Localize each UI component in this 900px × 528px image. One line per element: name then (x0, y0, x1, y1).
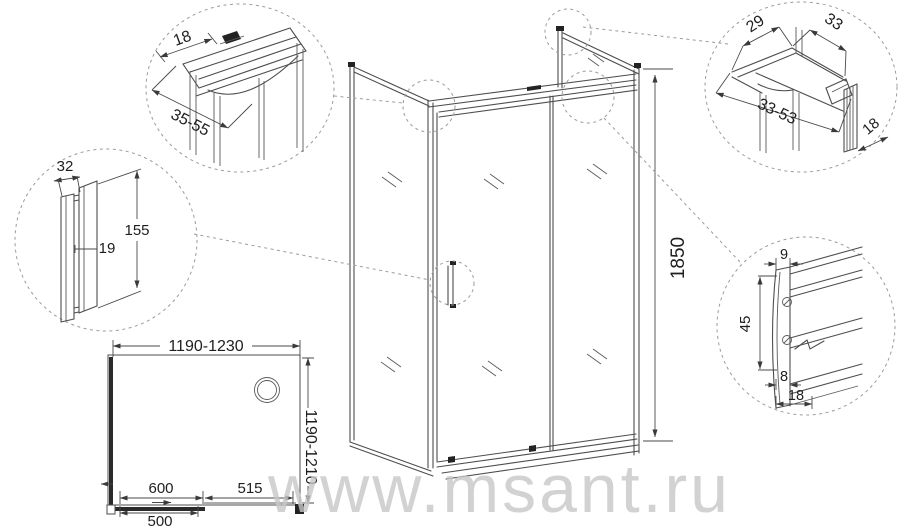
plan-door-label: 500 (147, 513, 172, 528)
drawing-svg: 1850 18 35-55 (0, 0, 900, 528)
handle-length-label: 155 (124, 222, 149, 239)
corner-profile-plan (107, 505, 115, 514)
detail-handle: 32 155 19 (15, 149, 197, 331)
height-dimension: 1850 (643, 69, 689, 441)
handle-gap-label: 19 (99, 240, 116, 257)
profile-cap (348, 62, 355, 67)
detail-tr-width-b-label: 33 (821, 10, 845, 34)
detail-tr-width-a-label: 29 (743, 12, 767, 36)
technical-drawing-shower-enclosure: 1850 18 35-55 (0, 0, 900, 528)
sliding-doors (437, 96, 553, 461)
rail-bracket (527, 85, 541, 91)
glass-shine-marks (381, 54, 607, 376)
detail-tr-range-label: 33-53 (755, 96, 799, 129)
detail-rail-profile: 9 45 8 18 (717, 237, 895, 415)
rail-height-label: 45 (737, 316, 754, 333)
rail-depth-label: 18 (788, 388, 804, 404)
drain-circle (255, 378, 280, 403)
left-side-panel (348, 62, 433, 476)
plan-opening-label: 600 (148, 480, 173, 497)
detail-tr-glass-label: 18 (859, 115, 883, 139)
watermark: www.msant.ru (268, 450, 731, 528)
callout-circles (194, 9, 740, 305)
profile-cap (556, 26, 564, 31)
rail-top-width-label: 9 (780, 247, 788, 263)
handle-width-label: 32 (57, 158, 74, 175)
profile-cap (634, 63, 641, 68)
main-height-dim-label: 1850 (668, 237, 689, 279)
detail-wall-profile-left: 18 35-55 (146, 4, 334, 172)
detail-wall-profile-right: 29 33 33-53 18 (705, 2, 897, 172)
plan-fixed-label: 515 (237, 480, 262, 497)
main-isometric-view: 1850 (194, 9, 740, 479)
door-handle (448, 261, 456, 308)
rail-inner-width-label: 8 (780, 369, 788, 385)
plan-width-label: 1190-1230 (168, 338, 243, 355)
top-rail (429, 74, 637, 117)
